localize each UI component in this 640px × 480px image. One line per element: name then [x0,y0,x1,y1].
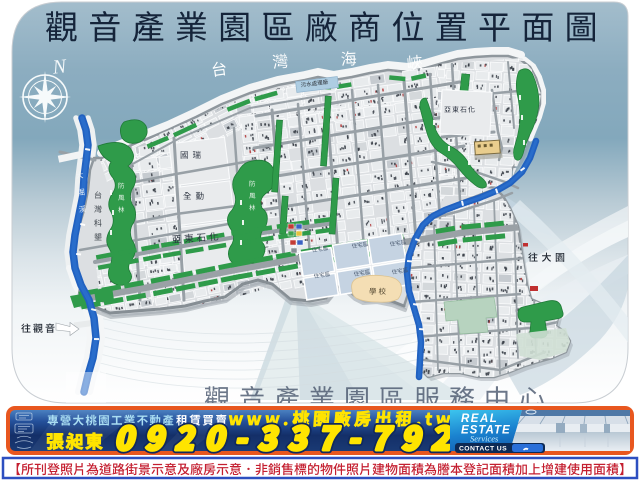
svg-text:CONTACT US: CONTACT US [459,446,507,453]
svg-text:REAL: REAL [461,413,498,425]
svg-text:Services: Services [470,434,499,444]
